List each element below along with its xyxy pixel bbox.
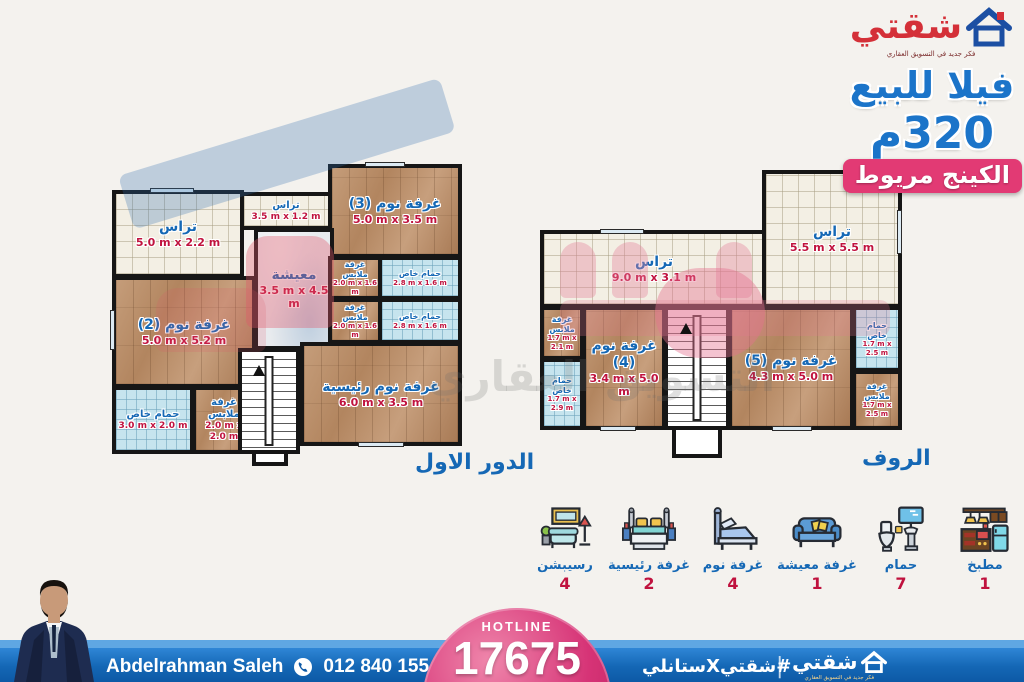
kitchen-icon [958, 504, 1012, 558]
room-dressing-a: غرفة ملابس 2.0 m x 1.6 m [328, 256, 382, 300]
room-master-bedroom: غرفة نوم رئيسية 6.0 m x 3.5 m [300, 342, 462, 446]
room-bedroom-2: غرفة نوم (2) 5.0 m x 5.2 m [112, 276, 256, 388]
stair-landing [252, 454, 288, 466]
window-marker [365, 162, 405, 167]
single-bed-icon [706, 504, 760, 558]
room-living: معيشة 3.5 m x 4.5 m [254, 228, 334, 350]
staircase [664, 306, 730, 430]
campaign-hashtag: #شقتيXستانلي [642, 656, 791, 677]
room-bath-d: حمام خاص 1.7 m x 2.9 m [540, 358, 584, 430]
room-label: حمام خاص [544, 376, 580, 395]
room-dims: 3.5 m x 1.2 m [252, 212, 321, 223]
room-dims: 2.8 m x 1.6 m [393, 322, 447, 330]
master-bed-icon [622, 504, 676, 558]
staircase [238, 348, 300, 454]
room-dressing-e: غرفة ملابس 1.7 m x 2.5 m [852, 370, 902, 430]
room-label: حمام خاص [399, 312, 441, 322]
room-label: معيشة [271, 267, 316, 284]
room-label: تراس [272, 200, 299, 212]
room-label: غرفة نوم (3) [349, 196, 442, 213]
window-marker [772, 426, 812, 431]
room-label: حمام خاص [856, 321, 898, 340]
room-bath-b: حمام خاص 2.8 m x 1.6 m [378, 298, 462, 344]
room-dims: 2.0 m x 1.6 m [332, 322, 378, 339]
separator: | [776, 654, 783, 679]
room-dims: 1.7 m x 2.5 m [856, 340, 898, 357]
room-label: تراس [159, 219, 197, 236]
room-label: غرفة ملابس [332, 303, 378, 322]
room-terrace-big: تراس 9.0 m x 3.1 m [540, 230, 768, 308]
reception-icon [538, 504, 592, 558]
room-label: غرفة نوم رئيسية [322, 379, 439, 396]
room-bedroom-4: غرفة نوم (4) 3.4 m x 5.0 m [582, 306, 666, 430]
room-dims: 1.7 m x 2.9 m [544, 395, 580, 412]
room-dressing-b: غرفة ملابس 2.0 m x 1.6 m [328, 298, 382, 344]
window-marker [150, 188, 194, 193]
room-dims: 5.0 m x 5.2 m [142, 334, 226, 347]
legend-label: رسيبشن [537, 558, 593, 573]
legend-item-reception: رسيبشن 4 [528, 504, 602, 593]
room-dims: 5.0 m x 2.2 m [136, 236, 220, 249]
room-label: غرفة نوم (2) [138, 317, 231, 334]
window-marker [600, 229, 644, 234]
room-bedroom-3: غرفة نوم (3) 5.0 m x 3.5 m [328, 164, 462, 258]
legend-item-master-room: غرفة رئيسية 2 [612, 504, 686, 593]
room-dims: 3.0 m x 2.0 m [119, 421, 188, 432]
room-terrace-1: تراس 5.0 m x 2.2 m [112, 190, 244, 278]
room-label: تراس [813, 224, 851, 241]
brand-name: شقتي [850, 9, 962, 45]
area-size: 320م [846, 108, 1018, 159]
brand-tagline: فكر جديد في التسويق العقاري [848, 50, 1014, 58]
window-marker [897, 210, 902, 254]
brand-tagline: فكر جديد في التسويق العقاري [804, 675, 874, 681]
room-bedroom-5: غرفة نوم (5) 4.3 m x 5.0 m [728, 306, 854, 430]
room-label: تراس [635, 254, 673, 271]
furniture-legend: رسيبشن 4 غرفة رئيسية 2 [528, 504, 1024, 593]
room-dims: 9.0 m x 3.1 m [612, 271, 696, 284]
bathroom-icon [874, 504, 928, 558]
room-dressing-d: غرفة ملابس 1.7 m x 2.1 m [540, 306, 584, 360]
room-label: غرفة ملابس [544, 315, 580, 334]
plan-title-first-floor: الدور الاول [415, 450, 534, 475]
phone-icon [293, 657, 313, 677]
room-dims: 3.5 m x 4.5 m [258, 284, 330, 310]
agent-photo [6, 570, 102, 682]
legend-count: 1 [811, 574, 822, 593]
agent-contact: Abdelrahman Saleh 012 840 155 56 [106, 656, 455, 678]
room-bath-c: حمام خاص 3.0 m x 2.0 m [112, 386, 194, 454]
brand-house-icon [861, 650, 887, 674]
brand-house-icon [966, 6, 1012, 48]
room-dims: 5.0 m x 3.5 m [353, 213, 437, 226]
floor-plan-first-floor: تراس 5.0 m x 2.2 m تراس 3.5 m x 1.2 m غر… [110, 162, 466, 458]
legend-item-living-room: غرفة معيشة 1 [780, 504, 854, 593]
room-terrace-2: تراس 3.5 m x 1.2 m [240, 192, 332, 230]
plan-title-roof: الروف [862, 446, 931, 471]
legend-count: 4 [727, 574, 738, 593]
legend-item-bathroom: حمام 7 [864, 504, 938, 593]
room-bath-e: حمام خاص 1.7 m x 2.5 m [852, 306, 902, 372]
brand-block: شقتي فكر جديد في التسويق العقاري [848, 6, 1014, 58]
stair-landing [672, 430, 722, 458]
location-banner: الكينج مريوط [843, 159, 1022, 193]
room-label: حمام خاص [399, 269, 441, 279]
room-bath-a: حمام خاص 2.8 m x 1.6 m [378, 256, 462, 300]
room-dims: 2.8 m x 1.6 m [393, 279, 447, 287]
offer-title: فيلا للبيع [846, 64, 1018, 107]
room-dims: 5.5 m x 5.5 m [790, 241, 874, 254]
legend-count: 2 [643, 574, 654, 593]
legend-label: غرفة نوم [703, 558, 763, 573]
window-marker [110, 310, 115, 350]
hotline-number[interactable]: 17675 [453, 634, 581, 682]
sofa-icon [790, 504, 844, 558]
legend-count: 7 [895, 574, 906, 593]
hotline-badge: HOTLINE 17675 [422, 608, 612, 682]
legend-label: حمام [885, 558, 918, 573]
legend-label: غرفة معيشة [777, 558, 857, 573]
brand-name: شقتي [792, 652, 858, 673]
room-label: غرفة نوم (5) [745, 353, 838, 370]
window-marker [358, 442, 404, 447]
room-dims: 2.0 m x 1.6 m [332, 279, 378, 296]
room-dims: 1.7 m x 2.5 m [856, 401, 898, 418]
legend-label: غرفة رئيسية [608, 558, 690, 573]
floor-plan-roof: تراس 9.0 m x 3.1 m تراس 5.5 m x 5.5 m غر… [538, 162, 904, 464]
legend-count: 4 [559, 574, 570, 593]
agent-name: Abdelrahman Saleh [106, 656, 283, 678]
room-dims: 3.4 m x 5.0 m [586, 372, 662, 398]
room-label: غرفة ملابس [856, 382, 898, 401]
legend-item-bedroom: غرفة نوم 4 [696, 504, 770, 593]
window-marker [600, 426, 636, 431]
legend-item-kitchen: مطبخ 1 [948, 504, 1022, 593]
legend-label: مطبخ [967, 558, 1002, 573]
room-dims: 6.0 m x 3.5 m [339, 396, 423, 409]
legend-count: 1 [979, 574, 990, 593]
room-label: حمام خاص [127, 409, 180, 421]
flyer-canvas: تراس 5.0 m x 2.2 m تراس 3.5 m x 1.2 m غر… [0, 0, 1024, 682]
footer-brand-block: شقتي فكر جديد في التسويق العقاري [792, 650, 887, 681]
room-dims: 1.7 m x 2.1 m [544, 334, 580, 351]
room-label: غرفة ملابس [332, 260, 378, 279]
room-label: غرفة نوم (4) [586, 338, 662, 372]
room-dims: 4.3 m x 5.0 m [749, 370, 833, 383]
